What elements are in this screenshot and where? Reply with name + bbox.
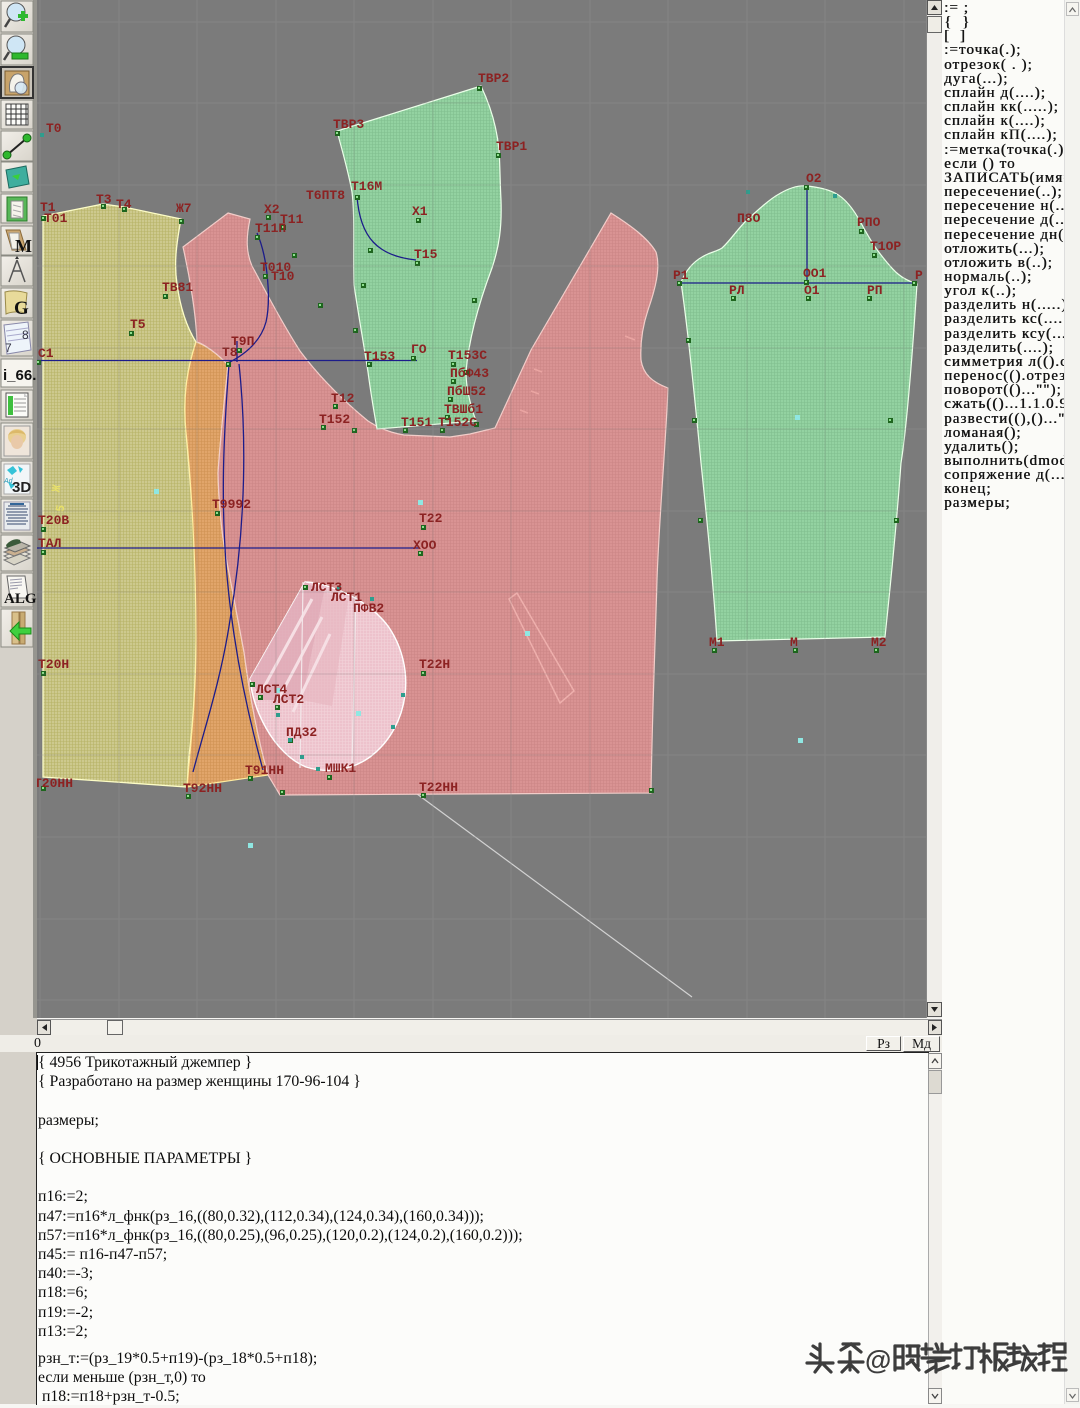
svg-text:ПбФ43: ПбФ43 bbox=[450, 366, 489, 381]
svg-text:Х1: Х1 bbox=[412, 204, 428, 219]
svg-text:Т91НН: Т91НН bbox=[245, 763, 284, 778]
svg-text:Т20НН: Т20НН bbox=[37, 776, 73, 791]
svg-text:Т11П: Т11П bbox=[255, 221, 286, 236]
svg-text:ALG: ALG bbox=[4, 591, 37, 607]
svg-text:G: G bbox=[14, 298, 29, 319]
svg-text:Т151: Т151 bbox=[401, 415, 432, 430]
svg-text:ТВ81: ТВ81 bbox=[162, 280, 193, 295]
svg-text:Т15: Т15 bbox=[414, 247, 438, 262]
svg-text:РПО: РПО bbox=[857, 215, 881, 230]
svg-text:РП: РП bbox=[867, 283, 883, 298]
svg-text:О1: О1 bbox=[804, 283, 820, 298]
svg-text:Т9992: Т9992 bbox=[212, 497, 251, 512]
svg-text:Т22: Т22 bbox=[419, 511, 443, 526]
svg-text:Т153: Т153 bbox=[364, 349, 395, 364]
svg-text:М: М bbox=[790, 635, 798, 650]
svg-text:ПбШ52: ПбШ52 bbox=[447, 384, 486, 399]
svg-text:8: 8 bbox=[22, 328, 29, 342]
svg-text:Т20В: Т20В bbox=[38, 513, 69, 528]
svg-text:Т6ПТ8: Т6ПТ8 bbox=[306, 188, 345, 203]
svg-text:РЛ: РЛ bbox=[729, 283, 745, 298]
svg-text:Т10: Т10 bbox=[271, 269, 295, 284]
svg-text:М2: М2 bbox=[871, 635, 887, 650]
svg-text:Т4: Т4 bbox=[116, 197, 132, 212]
svg-text:ПД32: ПД32 bbox=[286, 725, 317, 740]
svg-text:i_66.: i_66. bbox=[3, 367, 36, 384]
svg-text:О2: О2 bbox=[806, 171, 822, 186]
svg-text:Т20Н: Т20Н bbox=[38, 657, 69, 672]
svg-text:ГО: ГО bbox=[411, 342, 427, 357]
svg-text:М1: М1 bbox=[709, 635, 725, 650]
svg-text:ТАЛ: ТАЛ bbox=[38, 536, 61, 551]
svg-text:ТВР1: ТВР1 bbox=[496, 139, 527, 154]
svg-text:Т22НН: Т22НН bbox=[419, 780, 458, 795]
svg-text:Т3: Т3 bbox=[96, 192, 112, 207]
svg-text:ЛСТ2: ЛСТ2 bbox=[273, 692, 304, 707]
svg-text:Т5: Т5 bbox=[130, 317, 146, 332]
svg-text:Ж7: Ж7 bbox=[176, 201, 192, 216]
svg-text:Т152: Т152 bbox=[319, 412, 350, 427]
svg-text:Ad: Ad bbox=[3, 478, 14, 485]
svg-text:П8О: П8О bbox=[737, 211, 761, 226]
svg-text:ПФВ2: ПФВ2 bbox=[353, 601, 384, 616]
svg-text:ОО1: ОО1 bbox=[803, 266, 827, 281]
svg-text:ТВР3: ТВР3 bbox=[333, 117, 364, 132]
svg-text:Т8: Т8 bbox=[222, 345, 238, 360]
svg-text:Т01: Т01 bbox=[44, 211, 68, 226]
svg-text:Р1: Р1 bbox=[673, 268, 689, 283]
svg-text:M: M bbox=[15, 236, 32, 256]
svg-text:Т152С: Т152С bbox=[438, 415, 477, 430]
svg-text:Т22Н: Т22Н bbox=[419, 657, 450, 672]
svg-text:ТВР2: ТВР2 bbox=[478, 71, 509, 86]
svg-text:МШК1: МШК1 bbox=[325, 761, 356, 776]
svg-text:Т16М: Т16М bbox=[351, 179, 382, 194]
svg-text:7: 7 bbox=[5, 341, 12, 355]
svg-text:Т12: Т12 bbox=[331, 391, 355, 406]
svg-text:@: @ bbox=[865, 1345, 891, 1375]
svg-text:Т1ОР: Т1ОР bbox=[870, 239, 901, 254]
svg-text:Т92НН: Т92НН bbox=[183, 781, 222, 796]
svg-text:Т153С: Т153С bbox=[448, 348, 487, 363]
svg-text:Х2: Х2 bbox=[264, 202, 280, 217]
svg-text:Р: Р bbox=[915, 268, 923, 283]
svg-text:Т0: Т0 bbox=[46, 121, 62, 136]
svg-text:3D: 3D bbox=[12, 479, 31, 496]
